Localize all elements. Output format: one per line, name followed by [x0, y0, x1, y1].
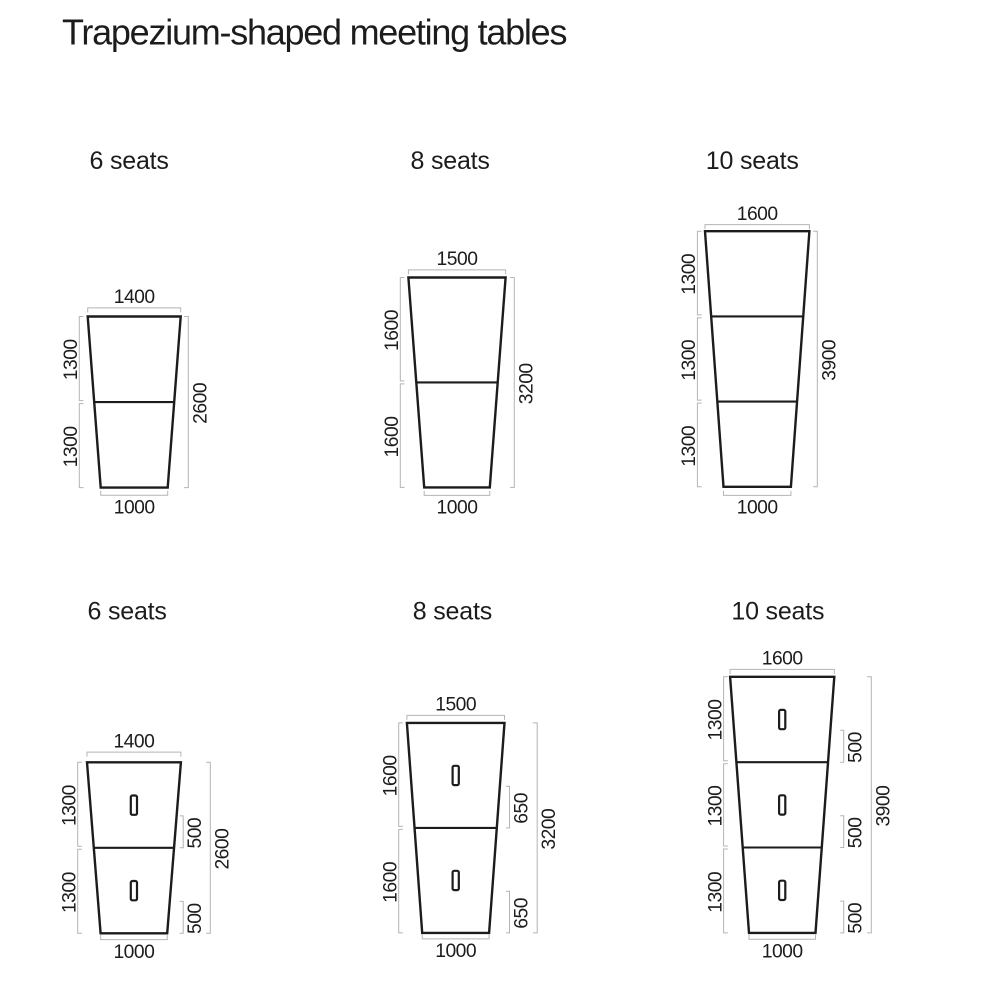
- svg-text:1400: 1400: [113, 731, 154, 752]
- svg-text:1300: 1300: [679, 426, 700, 467]
- svg-text:2600: 2600: [212, 829, 233, 870]
- svg-text:1300: 1300: [705, 700, 726, 741]
- svg-text:1000: 1000: [437, 498, 478, 519]
- svg-text:1300: 1300: [679, 254, 700, 295]
- svg-text:3200: 3200: [539, 809, 560, 850]
- svg-text:1000: 1000: [435, 941, 476, 962]
- svg-text:1000: 1000: [762, 942, 803, 963]
- svg-text:500: 500: [846, 818, 867, 849]
- svg-text:650: 650: [512, 793, 533, 824]
- svg-text:1300: 1300: [61, 426, 82, 467]
- svg-text:1300: 1300: [59, 872, 80, 913]
- svg-text:6 seats: 6 seats: [88, 598, 167, 626]
- svg-text:1000: 1000: [114, 498, 155, 519]
- svg-text:10 seats: 10 seats: [706, 147, 799, 175]
- svg-text:3900: 3900: [819, 340, 840, 381]
- svg-text:1500: 1500: [437, 249, 478, 270]
- svg-text:3200: 3200: [516, 363, 537, 404]
- svg-text:1600: 1600: [382, 310, 403, 351]
- svg-text:1600: 1600: [380, 862, 401, 903]
- svg-text:500: 500: [846, 903, 867, 934]
- svg-text:1600: 1600: [762, 649, 803, 670]
- svg-text:1300: 1300: [679, 340, 700, 381]
- svg-text:1300: 1300: [61, 339, 82, 380]
- svg-text:1000: 1000: [737, 498, 778, 519]
- svg-text:3900: 3900: [873, 786, 894, 827]
- svg-text:1300: 1300: [705, 872, 726, 913]
- svg-text:1000: 1000: [113, 942, 154, 963]
- svg-text:1400: 1400: [114, 287, 155, 308]
- svg-text:500: 500: [846, 732, 867, 763]
- svg-text:8 seats: 8 seats: [413, 598, 492, 626]
- svg-text:8 seats: 8 seats: [411, 147, 490, 175]
- svg-text:1600: 1600: [737, 204, 778, 225]
- svg-text:10 seats: 10 seats: [731, 598, 824, 626]
- svg-text:500: 500: [185, 818, 206, 849]
- svg-text:1500: 1500: [435, 695, 476, 716]
- svg-text:2600: 2600: [190, 383, 211, 424]
- svg-text:1300: 1300: [59, 785, 80, 826]
- svg-text:6 seats: 6 seats: [90, 147, 169, 175]
- svg-text:500: 500: [185, 903, 206, 934]
- svg-text:Trapezium-shaped meeting table: Trapezium-shaped meeting tables: [62, 12, 566, 53]
- svg-text:650: 650: [512, 898, 533, 929]
- svg-text:1600: 1600: [382, 417, 403, 458]
- svg-text:1300: 1300: [705, 786, 726, 827]
- svg-text:1600: 1600: [380, 755, 401, 796]
